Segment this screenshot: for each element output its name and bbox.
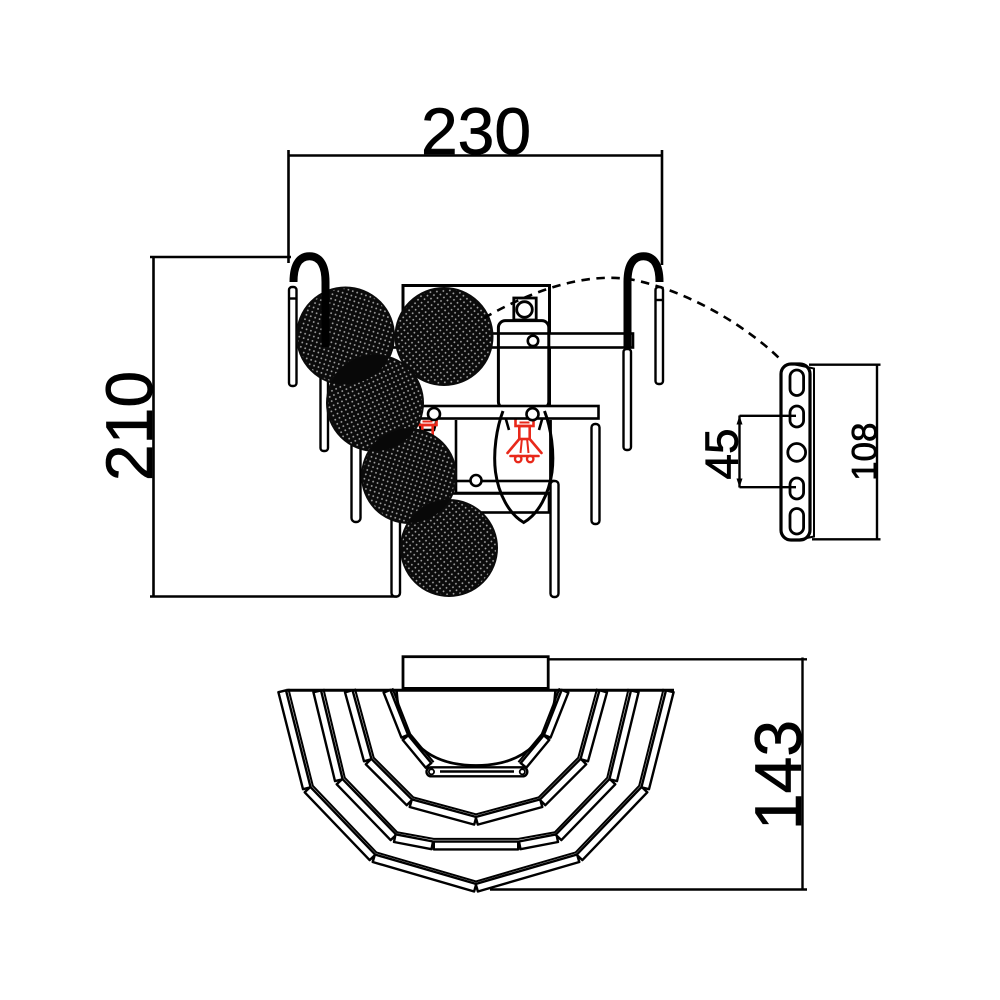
svg-text:230: 230 <box>421 94 531 168</box>
svg-text:108: 108 <box>846 422 885 480</box>
svg-text:210: 210 <box>92 371 166 481</box>
svg-text:45: 45 <box>696 428 748 479</box>
svg-text:143: 143 <box>741 720 815 830</box>
